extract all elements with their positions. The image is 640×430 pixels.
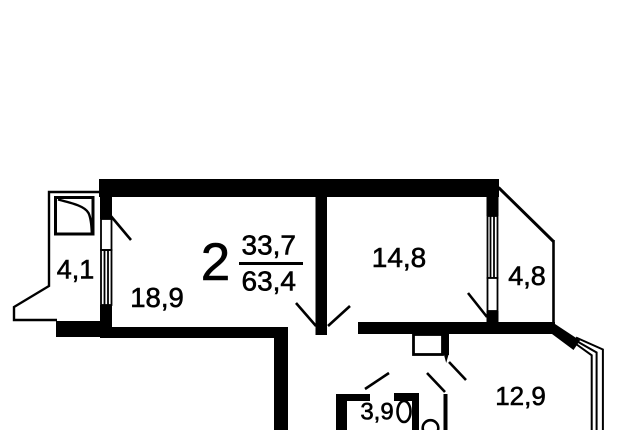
svg-text:3,9: 3,9	[360, 399, 393, 426]
svg-text:14,8: 14,8	[372, 242, 427, 273]
svg-text:2: 2	[201, 233, 230, 292]
svg-text:18,9: 18,9	[130, 282, 184, 313]
svg-text:4,8: 4,8	[508, 261, 546, 291]
svg-text:12,9: 12,9	[495, 381, 546, 411]
svg-text:4,1: 4,1	[57, 255, 95, 285]
svg-text:33,7: 33,7	[242, 230, 297, 261]
svg-text:63,4: 63,4	[242, 266, 297, 297]
